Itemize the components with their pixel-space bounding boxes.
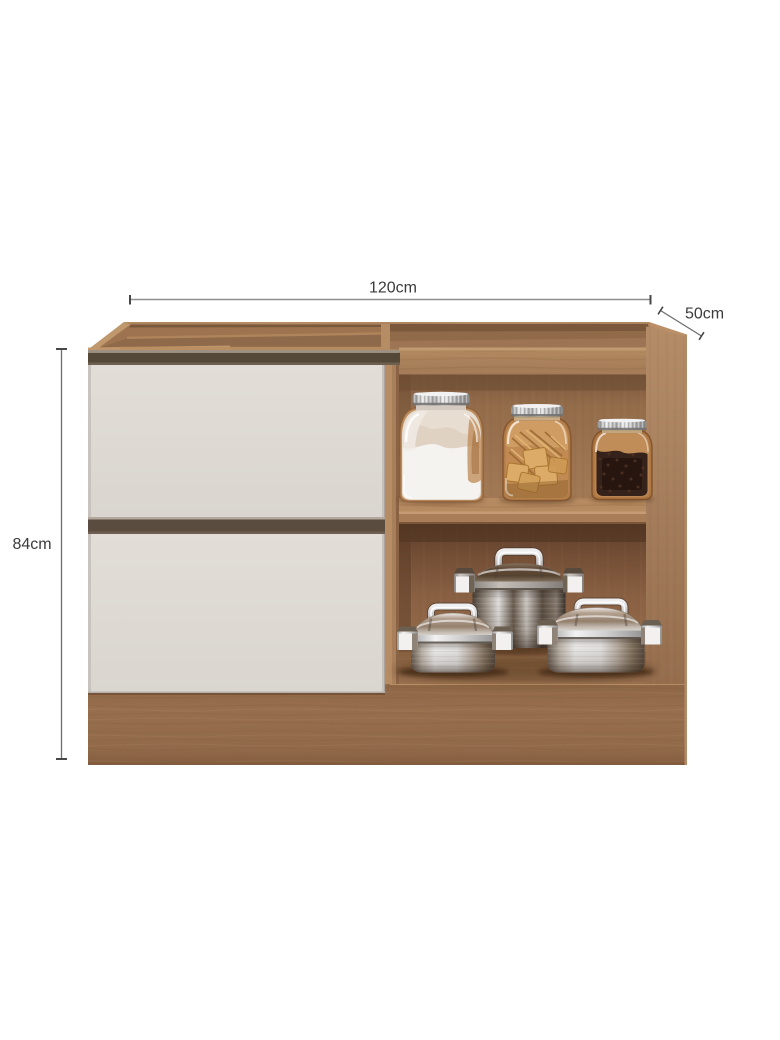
svg-text:120cm: 120cm [369, 280, 417, 297]
svg-text:84cm: 84cm [12, 536, 51, 553]
svg-text:50cm: 50cm [685, 306, 724, 323]
